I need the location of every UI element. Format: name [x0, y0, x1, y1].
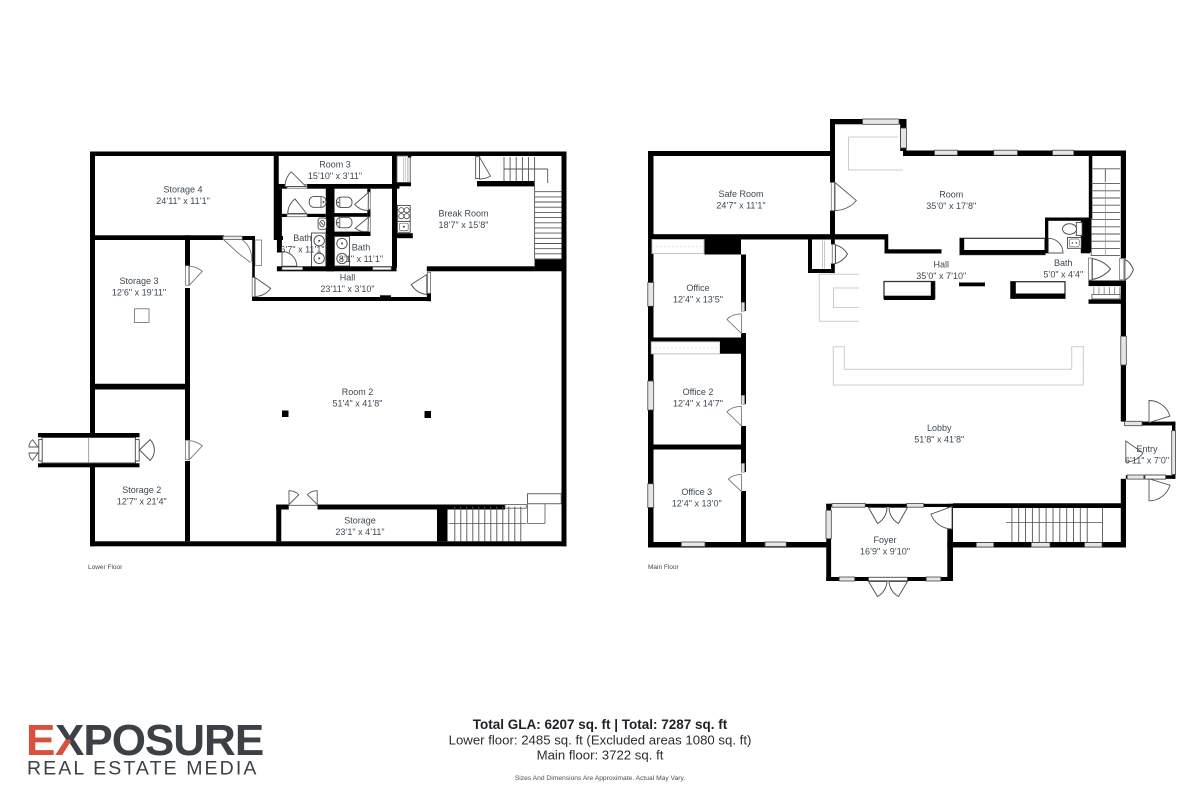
- svg-text:51’8" x 41’8": 51’8" x 41’8": [914, 435, 964, 445]
- svg-text:12’4" x 13’5": 12’4" x 13’5": [673, 295, 723, 305]
- svg-text:24’7" x 11’1": 24’7" x 11’1": [716, 201, 765, 211]
- svg-text:23’1" x 4’11": 23’1" x 4’11": [335, 527, 384, 537]
- svg-text:16’9" x 9’10": 16’9" x 9’10": [860, 547, 910, 557]
- svg-text:51’4" x 41’8": 51’4" x 41’8": [333, 399, 383, 409]
- svg-text:12’6" x 19’11": 12’6" x 19’11": [112, 288, 166, 298]
- svg-text:Storage: Storage: [344, 516, 376, 526]
- svg-text:Break Room: Break Room: [438, 209, 488, 219]
- svg-text:5’0" x 4’4": 5’0" x 4’4": [1043, 269, 1083, 279]
- svg-text:35’0" x 7’10": 35’0" x 7’10": [916, 271, 966, 281]
- svg-text:Storage 3: Storage 3: [119, 276, 158, 286]
- svg-text:8’1" x 11’1": 8’1" x 11’1": [339, 254, 383, 264]
- svg-text:Total GLA: 6207 sq. ft | Total: Total GLA: 6207 sq. ft | Total: 7287 sq.…: [473, 717, 728, 732]
- svg-text:REAL ESTATE MEDIA: REAL ESTATE MEDIA: [27, 758, 258, 780]
- svg-text:Room: Room: [939, 190, 963, 200]
- svg-text:Storage 4: Storage 4: [163, 185, 202, 195]
- svg-text:12’4" x 13’0": 12’4" x 13’0": [672, 499, 722, 509]
- svg-text:Room 2: Room 2: [342, 387, 374, 397]
- svg-text:Foyer: Foyer: [873, 535, 896, 545]
- svg-text:Hall: Hall: [933, 260, 949, 270]
- svg-text:24’11" x 11’1": 24’11" x 11’1": [156, 196, 210, 206]
- svg-text:Lower Floor: Lower Floor: [88, 564, 123, 571]
- svg-text:Safe Room: Safe Room: [718, 189, 763, 199]
- svg-text:Sizes And Dimensions Are Appro: Sizes And Dimensions Are Approximate. Ac…: [515, 775, 685, 782]
- svg-text:Lower floor: 2485 sq. ft (Excl: Lower floor: 2485 sq. ft (Excluded areas…: [449, 733, 752, 748]
- svg-text:18’7" x 15’8": 18’7" x 15’8": [439, 220, 489, 230]
- svg-text:Bath: Bath: [293, 233, 312, 243]
- svg-text:Main floor: 3722 sq. ft: Main floor: 3722 sq. ft: [537, 748, 664, 763]
- svg-text:Office 2: Office 2: [683, 387, 714, 397]
- svg-text:Entry: Entry: [1136, 444, 1158, 454]
- svg-text:15’10" x 3’11": 15’10" x 3’11": [308, 171, 362, 181]
- svg-text:6’11" x 7’0": 6’11" x 7’0": [1125, 456, 1169, 466]
- svg-text:23’11" x 3’10": 23’11" x 3’10": [320, 284, 374, 294]
- svg-text:Main Floor: Main Floor: [648, 564, 680, 571]
- svg-text:Office 3: Office 3: [681, 487, 712, 497]
- svg-text:Storage 2: Storage 2: [122, 485, 161, 495]
- svg-text:6’7" x 11’1": 6’7" x 11’1": [280, 245, 324, 255]
- svg-text:Room 3: Room 3: [319, 160, 351, 170]
- svg-text:Bath: Bath: [1054, 258, 1073, 268]
- svg-text:12’4" x 14’7": 12’4" x 14’7": [673, 399, 723, 409]
- svg-text:12’7" x 21’4": 12’7" x 21’4": [117, 497, 167, 507]
- svg-text:Lobby: Lobby: [927, 423, 952, 433]
- svg-text:Hall: Hall: [340, 273, 356, 283]
- svg-text:Bath: Bath: [352, 243, 371, 253]
- svg-text:35’0" x 17’8": 35’0" x 17’8": [926, 201, 976, 211]
- svg-text:Office: Office: [686, 283, 709, 293]
